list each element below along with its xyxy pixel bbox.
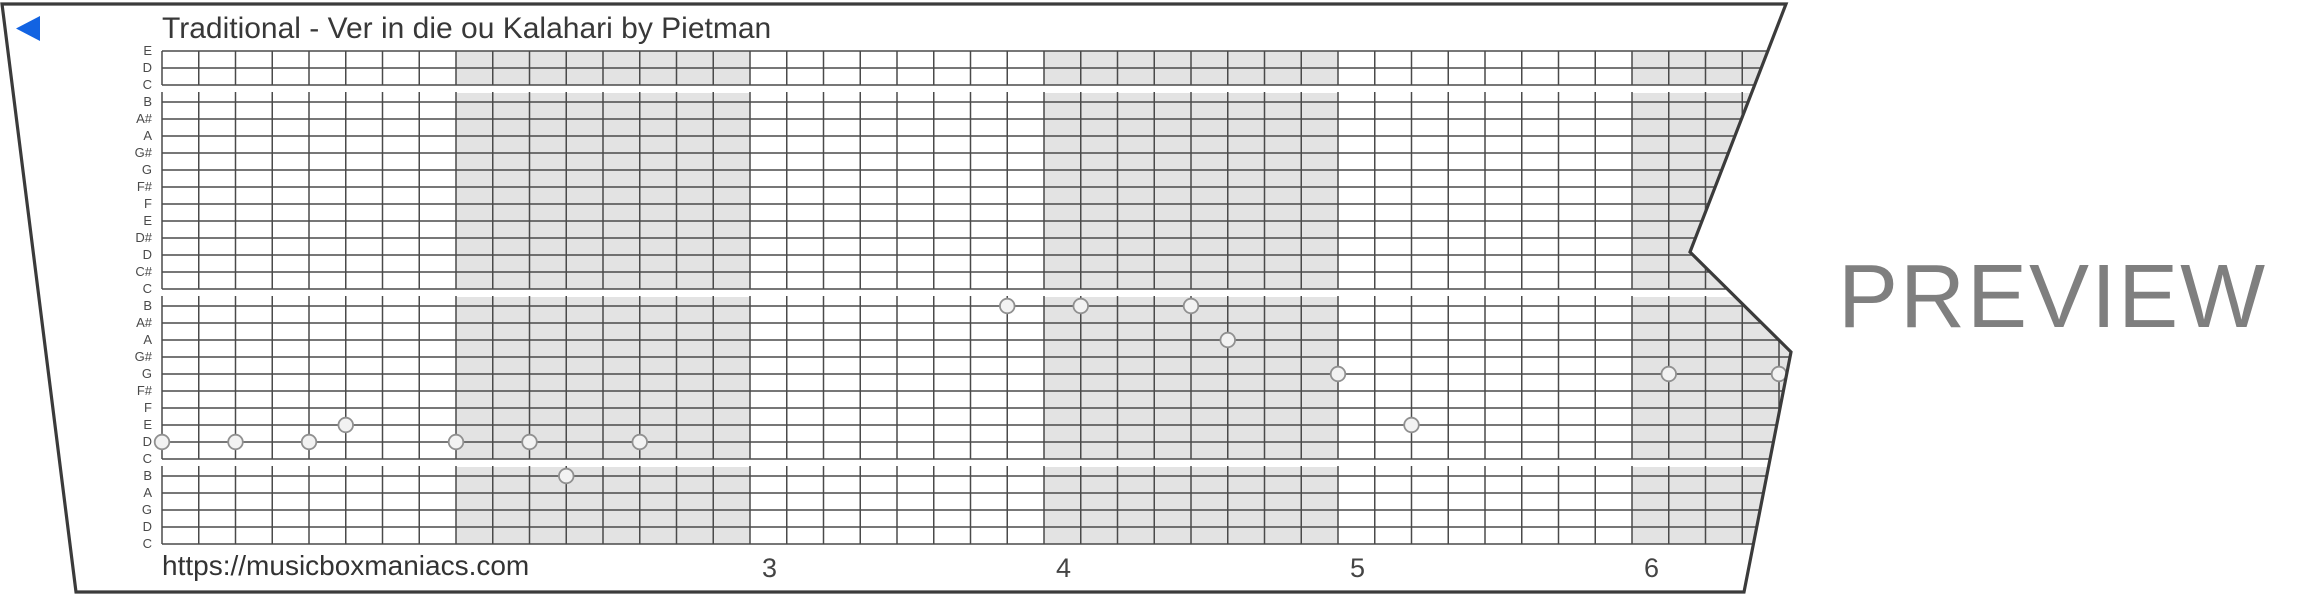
note-dot [449, 435, 464, 450]
note-label: G [92, 366, 152, 382]
note-label: C# [92, 264, 152, 280]
preview-watermark: PREVIEW [1838, 246, 2267, 349]
note-label: G# [92, 145, 152, 161]
note-dot [1000, 299, 1015, 314]
note-label: B [92, 94, 152, 110]
note-label: E [92, 417, 152, 433]
note-label: D [92, 247, 152, 263]
note-label: G [92, 502, 152, 518]
note-label: E [92, 213, 152, 229]
note-dot [1073, 299, 1088, 314]
note-label: A# [92, 315, 152, 331]
back-arrow-triangle [16, 16, 40, 41]
note-label: F [92, 196, 152, 212]
measure-number: 6 [1644, 553, 1659, 584]
note-label: C [92, 536, 152, 552]
note-dot [155, 435, 170, 450]
note-label: D [92, 519, 152, 535]
melody-title: Traditional - Ver in die ou Kalahari by … [162, 12, 771, 46]
note-dot [302, 435, 317, 450]
note-label: F# [92, 179, 152, 195]
note-label: F# [92, 383, 152, 399]
note-dot [522, 435, 537, 450]
music-strip-preview-page: Traditional - Ver in die ou Kalahari by … [0, 0, 2310, 597]
note-label: B [92, 298, 152, 314]
note-label: G [92, 162, 152, 178]
measure-number: 3 [762, 553, 777, 584]
note-label: D [92, 60, 152, 76]
note-label: G# [92, 349, 152, 365]
note-dot [559, 469, 574, 484]
note-label: E [92, 43, 152, 59]
note-label: A [92, 485, 152, 501]
note-dot [1220, 333, 1235, 348]
site-url: https://musicboxmaniacs.com [162, 550, 529, 582]
note-label: F [92, 400, 152, 416]
back-arrow-icon[interactable] [14, 14, 44, 44]
measure-number: 4 [1056, 553, 1071, 584]
note-dot [1404, 418, 1419, 433]
note-label: D [92, 434, 152, 450]
note-dot [1184, 299, 1199, 314]
note-label: A [92, 332, 152, 348]
shaded-measure-band [1632, 467, 1926, 544]
note-label: A# [92, 111, 152, 127]
measure-number: 5 [1350, 553, 1365, 584]
note-label: B [92, 468, 152, 484]
note-label: D# [92, 230, 152, 246]
note-label: C [92, 281, 152, 297]
note-dot [632, 435, 647, 450]
note-label: C [92, 77, 152, 93]
note-label: A [92, 128, 152, 144]
note-dot [228, 435, 243, 450]
note-dot [1661, 367, 1676, 382]
note-label: C [92, 451, 152, 467]
note-dot [1331, 367, 1346, 382]
note-dot [338, 418, 353, 433]
